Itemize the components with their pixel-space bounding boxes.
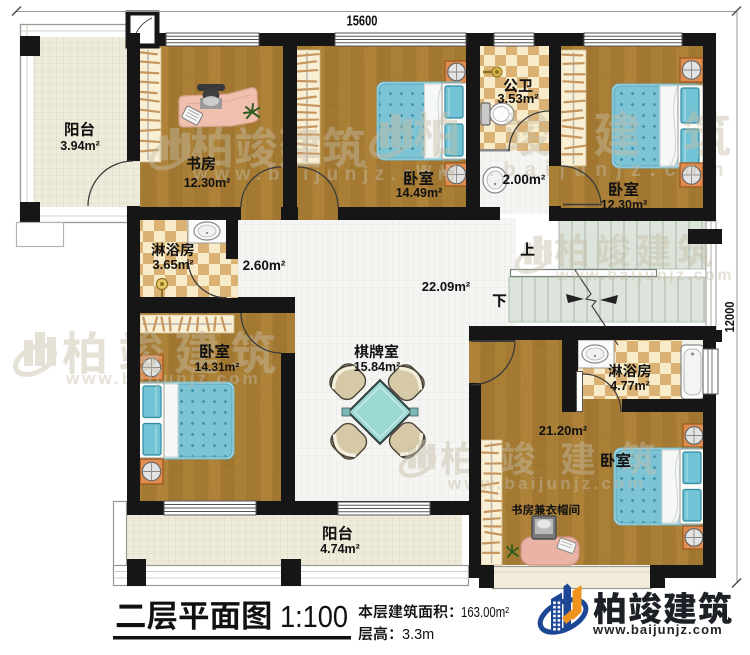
svg-text:15600: 15600 — [347, 14, 378, 30]
svg-text:14.31m²: 14.31m² — [195, 360, 240, 374]
svg-text:22.09m²: 22.09m² — [422, 279, 471, 294]
svg-text:1:100: 1:100 — [280, 599, 348, 634]
svg-text:2.00m²: 2.00m² — [503, 172, 546, 187]
svg-text:4.74m²: 4.74m² — [320, 542, 360, 556]
svg-text:12000: 12000 — [722, 302, 737, 333]
svg-text:3.65m²: 3.65m² — [152, 257, 194, 272]
svg-text:163.00m²: 163.00m² — [461, 605, 509, 621]
svg-text:12.30m²: 12.30m² — [184, 176, 231, 190]
svg-text:3.94m²: 3.94m² — [60, 139, 100, 153]
svg-text:3.53m²: 3.53m² — [497, 91, 539, 106]
svg-text:www.baijunjz.com: www.baijunjz.com — [592, 622, 723, 637]
svg-text:www.baijunjz.com: www.baijunjz.com — [555, 267, 734, 284]
svg-text:15.84m²: 15.84m² — [354, 360, 401, 374]
svg-text:4.77m²: 4.77m² — [610, 379, 650, 393]
svg-text:14.49m²: 14.49m² — [396, 186, 443, 200]
svg-text:12.30m²: 12.30m² — [601, 198, 648, 212]
svg-text:3.3m: 3.3m — [402, 627, 434, 643]
svg-text:www.baijunjz.com: www.baijunjz.com — [415, 159, 733, 181]
svg-text:21.20m²: 21.20m² — [539, 423, 588, 438]
svg-text:2.60m²: 2.60m² — [243, 258, 286, 273]
